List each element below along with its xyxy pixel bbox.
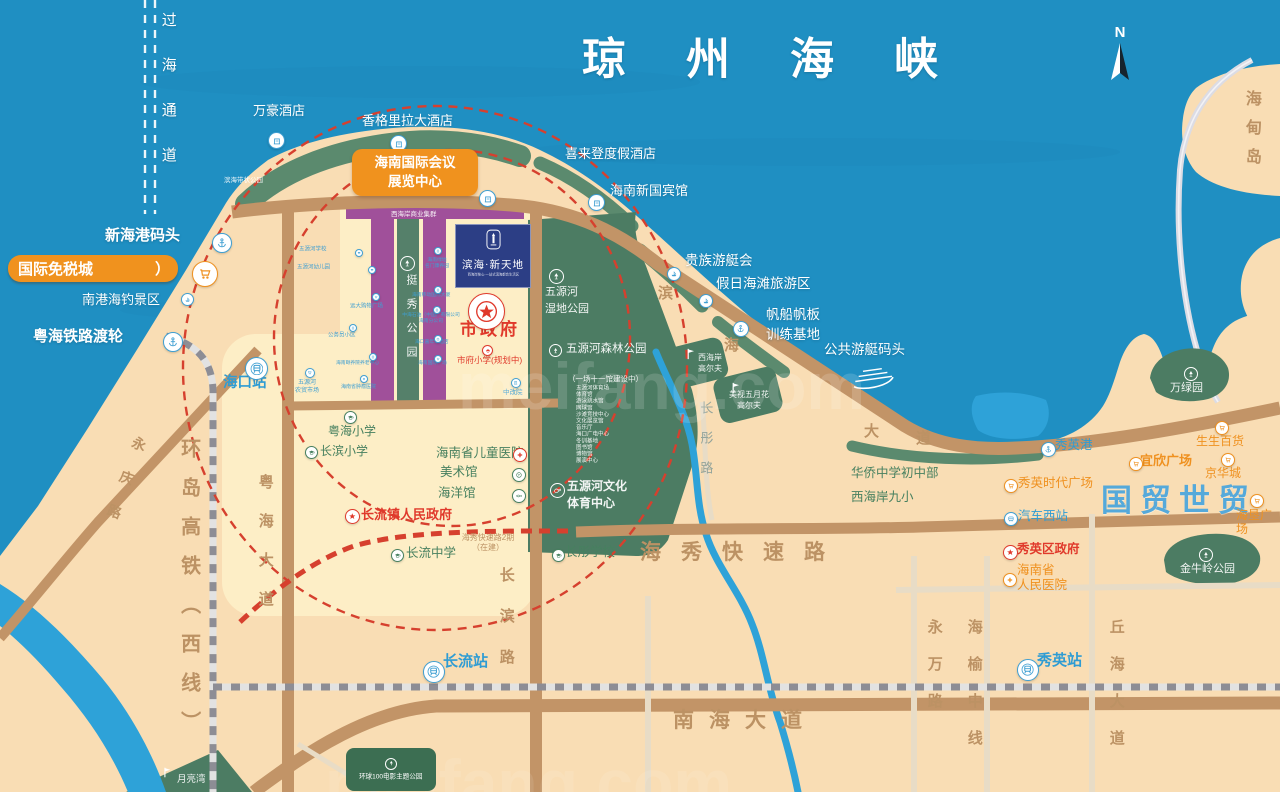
label-shengsheng-mall: 生生百货	[1196, 434, 1244, 448]
xiuying-gov-star-star-icon	[1003, 545, 1018, 560]
label-west-coast-9th-primary: 西海岸九小	[851, 490, 914, 505]
label-wanlv-park: 万绿园	[1170, 382, 1203, 395]
label-haidian-island: 海甸岛	[1241, 90, 1260, 177]
strip-r4-hotel-icon	[434, 335, 442, 343]
convention-center-badge: 海南国际会议 展览中心	[352, 149, 478, 196]
label-changbin-road: 长滨路	[497, 567, 515, 690]
label-haixiu-expressway: 海秀快速路	[640, 541, 845, 566]
changliu-middle-cap-icon	[391, 549, 404, 562]
label-nangang-fishing-area: 南港海钓景区	[82, 292, 160, 307]
people-hospital-cross-cross-icon	[1003, 573, 1017, 587]
label-huaqiao-middle-school: 华侨中学初中部	[851, 466, 939, 481]
label-wenti-center: 五源河文化 体育中心	[567, 478, 627, 513]
public-yacht-yacht-icon	[848, 362, 897, 394]
strip-school-cap-icon	[355, 249, 363, 257]
label-strip-label-2: 海南移动国际大厦	[412, 292, 450, 298]
ocean-museum-fish-icon	[512, 489, 526, 503]
label-civil-servant-community: 公务员小区	[328, 332, 356, 338]
label-changtong-school: 长彤学校	[565, 545, 615, 560]
label-strip-label-4: 海口嘉年华酒店	[415, 339, 449, 345]
shifu-primary-cap-icon	[482, 345, 493, 356]
label-yixin-plaza: 宜欣广场	[1140, 453, 1192, 468]
jinghua-cart-cart-icon	[1221, 453, 1235, 467]
sailing-anchor-anchor-icon	[733, 321, 749, 337]
haiken-cart-cart-icon	[1250, 494, 1264, 508]
yuehai-primary-cap-icon	[344, 411, 357, 424]
label-changbin-primary: 长滨小学	[320, 444, 368, 458]
strip-kindergarten-cap-icon	[368, 266, 376, 274]
label-ring-hsr-west-line: 环岛高铁（西线）	[176, 438, 200, 750]
label-ocean-museum: 海洋馆	[438, 486, 476, 501]
label-xinhai-port: 新海港码头	[105, 227, 180, 245]
art-museum-art-icon	[512, 468, 526, 482]
arrow-bracket: ）	[155, 258, 170, 279]
strip-r2-building-icon	[434, 286, 442, 294]
label-haiyu-mid-line: 海榆中线	[965, 619, 983, 767]
label-qiuhai-avenue: 丘海大道	[1107, 619, 1125, 767]
label-guomao-shimao: 国贸世贸	[1101, 483, 1257, 520]
label-binhai-ave-char4: 道	[916, 430, 931, 448]
strip-r3-building-icon	[433, 306, 441, 314]
label-wuyuanhe-wetland-park: 五源河 湿地公园	[545, 284, 589, 318]
strip-r1-building-icon	[434, 247, 442, 255]
label-wuyuanhe-school: 五源河学校	[299, 246, 327, 252]
label-strip-label-3: 中海石油（中国）有限公司 海南分公司	[400, 312, 462, 324]
label-changliu-middle: 长流中学	[406, 546, 456, 561]
shengsheng-cart-cart-icon	[1215, 421, 1229, 435]
holiday-beach-boat-icon	[699, 294, 713, 308]
label-jinniuling-park: 金牛岭公园	[1180, 563, 1235, 576]
label-changliu-station: 长流站	[443, 653, 488, 671]
label-yuehai-rail-ferry: 粤海铁路渡轮	[33, 328, 123, 346]
label-xiuying-district-gov: 秀英区政府	[1017, 542, 1080, 557]
times-plaza-cart-icon	[1004, 479, 1018, 493]
labels-layer: 琼州海峡过海通道万豪酒店香格里拉大酒店喜来登度假酒店海南新国宾馆滨海带状公园新海…	[0, 0, 1280, 792]
label-qiongzhou-strait: 琼州海峡	[582, 34, 998, 86]
sports-center-sport-icon	[550, 483, 565, 498]
label-yuehai-primary: 粤海小学	[328, 424, 376, 438]
label-haixiu-phase2: 海秀快速路2期 （在建）	[452, 533, 524, 554]
label-sailing-base: 帆船帆板 训练基地	[766, 305, 820, 346]
label-wuyuanhe-kindergarten: 五源河幼儿园	[297, 264, 330, 270]
label-xiuying-station: 秀英站	[1037, 652, 1082, 670]
west-bus-bus-icon	[1004, 512, 1018, 526]
location-map: 琼州海峡过海通道万豪酒店香格里拉大酒店喜来登度假酒店海南新国宾馆滨海带状公园新海…	[0, 0, 1280, 792]
movie-park-badge: 环球100电影主题公园	[346, 748, 436, 791]
project-tagline: 西海岸核心·一站式滨海都会生活区	[467, 272, 519, 277]
theater-icon	[385, 758, 397, 770]
label-strip-label-1: 海南绿地 名门康养园	[419, 257, 455, 269]
dutyfree-cart-cart-icon	[192, 261, 218, 287]
xinhai-port-anchor-anchor-icon	[212, 233, 232, 253]
label-changliu-town-gov: 长流镇人民政府	[361, 507, 452, 522]
wanlv-tree-tree-icon	[1184, 367, 1198, 381]
label-tumor-hospital: 海南省肿瘤医院	[341, 384, 376, 390]
fishing-area-boat-icon	[181, 293, 194, 306]
strip-mall-cart-icon	[372, 293, 380, 301]
label-west-bus-station: 汽车西站	[1018, 509, 1068, 524]
label-new-guobin-hotel: 海南新国宾馆	[610, 183, 688, 198]
project-logo: 滨海·新天地 西海岸核心·一站式滨海都会生活区	[455, 224, 531, 288]
project-title: 滨海·新天地	[462, 257, 524, 272]
movie-park-label: 环球100电影主题公园	[359, 771, 422, 780]
duty-free-label: 国际免税城	[18, 258, 93, 279]
ferry-anchor-anchor-icon	[163, 332, 183, 352]
yixin-cart-cart-icon	[1129, 457, 1143, 471]
label-yongwan-road: 永万路	[925, 619, 943, 730]
compass: N	[1106, 24, 1134, 87]
changtong-school-cap-icon	[552, 549, 565, 562]
label-jinghua-city: 京华城	[1205, 466, 1241, 480]
label-cross-sea-channel: 过海通道	[159, 12, 177, 192]
label-children-hospital: 海南省儿童医院	[436, 446, 524, 461]
west-coast-golf-flag-golfflag-icon	[684, 347, 698, 361]
strip-community-building-icon	[349, 324, 357, 332]
strip-hospital-cross-icon	[360, 375, 368, 383]
label-strip-label-5: 海南国际广场	[418, 360, 447, 366]
zhonggaiyuan-building-icon	[511, 378, 521, 388]
label-binhai-ave-char3: 大	[864, 423, 879, 441]
label-province-people-hospital: 海南省 人民医院	[1017, 563, 1067, 593]
xiuying-station-train-icon	[1017, 659, 1039, 681]
jinniuling-tree-tree-icon	[1199, 548, 1213, 562]
label-wanhao-hotel: 万豪酒店	[253, 103, 305, 118]
label-xiuying-port: 秀英港	[1055, 438, 1093, 453]
xiuying-port-anchor-anchor-icon	[1041, 442, 1056, 457]
label-binhai-belt-park: 滨海带状公园	[224, 176, 263, 184]
market-cart-icon	[305, 368, 315, 378]
label-yueliang-bay: 月亮湾	[177, 774, 206, 785]
meishi-golf-flag-golfflag-icon	[729, 381, 743, 395]
label-noble-yacht-club: 贵族游艇会	[685, 253, 753, 269]
marriott-hotel-hotel-icon	[268, 132, 285, 149]
project-emblem-icon	[486, 229, 501, 255]
guobin-hotel-hotel-icon	[588, 194, 605, 211]
label-sheraton-hotel: 喜来登度假酒店	[565, 146, 656, 161]
children-hospital-cross-cross-icon	[513, 448, 527, 462]
label-yongqing-road: 永庆路	[97, 434, 149, 541]
duty-free-badge: 国际免税城 ）	[8, 255, 178, 282]
label-west-coast-business: 西海岸商业集群	[391, 210, 437, 218]
wetland-tree-tree-icon	[549, 269, 564, 284]
haikou-station-train-icon	[245, 357, 268, 380]
yacht-club-boat-icon	[667, 267, 681, 281]
label-yuanda-mall: 远大购物广场	[350, 303, 383, 309]
changliu-station-train-icon	[423, 661, 445, 683]
tingxiu-tree-tree-icon	[400, 256, 415, 271]
changliu-gov-star-star-icon	[345, 509, 360, 524]
label-holiday-beach-area: 假日海滩旅游区	[716, 276, 811, 292]
strip-r5-cart-icon	[434, 355, 442, 363]
north-arrow-icon	[1109, 42, 1131, 82]
north-label: N	[1106, 24, 1134, 41]
label-binhai-ave-char1: 滨	[658, 285, 673, 303]
coast-hotel-hotel-icon	[479, 190, 496, 207]
label-art-museum: 美术馆	[440, 465, 478, 480]
label-xiuying-times-plaza: 秀英时代广场	[1018, 476, 1093, 491]
label-nanhai-avenue: 南海大道	[673, 709, 817, 734]
city-gov-star-govstar-icon	[468, 293, 505, 330]
changbin-primary-cap-icon	[305, 446, 318, 459]
label-wuyuanhe-market: 五源河 农贸市场	[288, 378, 326, 394]
forest-tree-tree-icon	[549, 344, 562, 357]
label-haiken-plaza: 海垦广场	[1236, 508, 1280, 536]
yueliang-golf-flag-golfflag-icon	[161, 766, 174, 779]
strip-nursing-building-icon	[369, 353, 377, 361]
label-yuehai-avenue: 粤海大道	[256, 474, 274, 630]
label-shangri-la-hotel: 香格里拉大酒店	[362, 113, 453, 128]
